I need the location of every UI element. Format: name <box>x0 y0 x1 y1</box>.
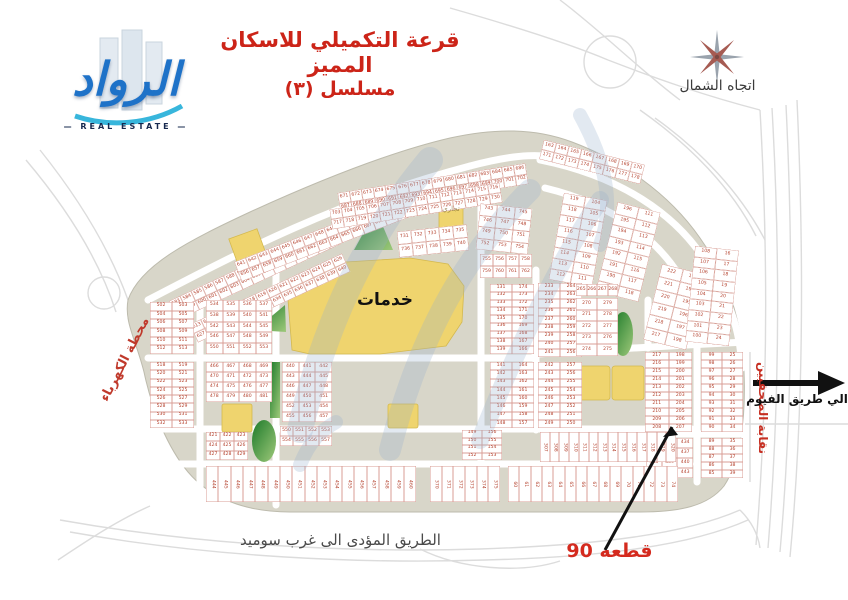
plot-cell: 97 <box>701 368 722 376</box>
plot-cell: 254 <box>560 387 582 395</box>
tr-block-1: 1191041181051171061161071151081141091131… <box>549 193 608 287</box>
plot-cell: 257 <box>560 362 582 370</box>
plot-cell: 256 <box>560 370 582 378</box>
strip-f: 1631641651661671681691701711721731741751… <box>539 140 645 185</box>
bottom-strip-3: 606162636465666768697071727374 <box>508 466 678 502</box>
plot-cell: 535 <box>223 300 240 311</box>
plot-cell: 203 <box>669 392 693 400</box>
plot-cell: 542 <box>206 322 223 333</box>
plot-cell: 238 <box>538 324 560 332</box>
plot-cell: 739 <box>440 239 455 253</box>
plot-cell: 372 <box>453 466 465 502</box>
plot-cell: 550 <box>206 343 223 354</box>
plot-cell: 168 <box>512 331 534 339</box>
plot-cell: 529 <box>172 403 194 411</box>
plot-cell: 552 <box>239 343 256 354</box>
plot-cell: 73 <box>655 466 666 502</box>
bottom-strip-2: 370371372373374375 <box>430 466 500 502</box>
plot-cell: 550 <box>280 426 293 436</box>
plot-cell: 520 <box>150 370 172 378</box>
plot-cell: 74 <box>667 466 678 502</box>
plot-cell: 466 <box>206 362 223 372</box>
plot-cell: 311 <box>579 432 589 462</box>
plot-cell: 240 <box>538 341 560 349</box>
plot-cell: 736 <box>398 243 413 257</box>
plot-cell: 452 <box>282 402 299 412</box>
plot-cell: 199 <box>669 360 693 368</box>
plot-cell: 265 <box>576 284 587 296</box>
plot-cell: 456 <box>354 466 366 502</box>
plot-cell: 449 <box>282 392 299 402</box>
plot-cell: 202 <box>669 384 693 392</box>
plot-cell: 754 <box>510 241 528 254</box>
services-area-label: خدمات <box>330 290 440 310</box>
plot-cell: 92 <box>701 408 722 416</box>
plot-cell: 279 <box>597 298 618 310</box>
plot-cell: 32 <box>722 408 743 416</box>
plot-cell: 442 <box>315 362 332 372</box>
arc-block-2: 1081610717106181051910420103211022210123… <box>685 246 739 346</box>
plot-cell: 244 <box>538 379 560 387</box>
plot-cell: 537 <box>256 300 273 311</box>
plot-cell: 555 <box>293 436 306 446</box>
plot-cell: 272 <box>576 321 597 333</box>
north-direction-label: اتجاه الشمال <box>655 78 780 94</box>
plot-cell: 69 <box>610 466 621 502</box>
plot-cell: 201 <box>669 376 693 384</box>
plot-cell: 150 <box>462 438 482 446</box>
plot-cell: 375 <box>488 466 500 502</box>
plot-cell: 740 <box>454 237 469 251</box>
plot-cell: 429 <box>234 451 248 460</box>
plot-cell: 702 <box>515 174 528 186</box>
plot-cell: 534 <box>206 300 223 311</box>
plot-cell: 440 <box>282 362 299 372</box>
left-grid-4: 4404414424434444454464474484494504514524… <box>282 362 332 422</box>
plot-cell: 762 <box>519 266 532 278</box>
plot-cell: 241 <box>538 349 560 357</box>
plot-cell: 66 <box>576 466 587 502</box>
plot-cell: 93 <box>701 400 722 408</box>
plot-cell: 456 <box>299 412 316 422</box>
plot-cell: 172 <box>512 300 534 308</box>
plot-cell: 422 <box>220 432 234 441</box>
plot-cell: 166 <box>512 346 534 354</box>
plot-cell: 524 <box>150 387 172 395</box>
plot-cell: 213 <box>645 384 669 392</box>
plot-cell: 239 <box>538 332 560 340</box>
plot-cell: 217 <box>645 352 669 360</box>
logo-arabic-text: الرواد <box>56 52 196 106</box>
plot-cell: 307 <box>540 432 550 462</box>
plot-cell: 145 <box>490 395 512 403</box>
plot-cell: 85 <box>701 470 722 478</box>
center-col-3: 149156150155151154152153 <box>462 430 502 460</box>
plot-cell: 450 <box>280 466 292 502</box>
plot-cell: 547 <box>223 332 240 343</box>
top-grid-3: 755756757758759760761762 <box>480 254 532 278</box>
plot-cell: 453 <box>317 466 329 502</box>
plot-cell: 70 <box>621 466 632 502</box>
plot-cell: 233 <box>538 283 560 291</box>
plot-cell: 91 <box>701 416 722 424</box>
plot-cell: 64 <box>553 466 564 502</box>
plot-cell: 276 <box>597 333 618 345</box>
plot-cell: 36 <box>722 446 743 454</box>
plot-cell: 309 <box>559 432 569 462</box>
plot-cell: 33 <box>722 416 743 424</box>
plot-cell: 434 <box>677 438 693 448</box>
plot-cell: 236 <box>538 308 560 316</box>
plot-cell: 539 <box>223 311 240 322</box>
plot-cell: 437 <box>677 448 693 458</box>
left-grid-2: 4664674684694704714724734744754764774784… <box>206 362 272 402</box>
plot-cell: 62 <box>531 466 542 502</box>
plot-cell: 447 <box>243 466 255 502</box>
plot-cell: 170 <box>512 315 534 323</box>
plot-cell: 167 <box>512 338 534 346</box>
plot-cell: 25 <box>722 352 743 360</box>
plot-cell: 214 <box>645 376 669 384</box>
plot-cell: 316 <box>627 432 637 462</box>
plot-cell: 98 <box>701 360 722 368</box>
plot-cell: 509 <box>172 328 194 337</box>
plot-cell: 730 <box>489 193 503 205</box>
plot-cell: 163 <box>512 370 534 378</box>
plot-cell: 29 <box>722 384 743 392</box>
plot-cell: 552 <box>306 426 319 436</box>
plot-cell: 452 <box>305 466 317 502</box>
plot-cell: 553 <box>319 426 332 436</box>
plot-cell: 444 <box>206 466 218 502</box>
plot-cell: 445 <box>315 372 332 382</box>
plot-cell: 533 <box>172 420 194 428</box>
plot-cell: 152 <box>462 453 482 461</box>
plot-cell: 147 <box>490 412 512 420</box>
mid-col-2: 2422572432562442552452542462532472522482… <box>538 362 582 428</box>
plot-cell: 317 <box>637 432 647 462</box>
plot-cell: 451 <box>292 466 304 502</box>
plot-cell: 135 <box>490 315 512 323</box>
plot-cell: 308 <box>550 432 560 462</box>
plot-cell: 153 <box>482 453 502 461</box>
plot-cell: 518 <box>150 362 172 370</box>
plot-cell: 320 <box>666 432 676 462</box>
plot-cell: 554 <box>280 436 293 446</box>
plot-cell: 237 <box>538 316 560 324</box>
plot-cell: 271 <box>576 310 597 322</box>
plot-cell: 245 <box>538 387 560 395</box>
plot-cell: 373 <box>465 466 477 502</box>
plot-cell: 445 <box>218 466 230 502</box>
plot-cell: 112 <box>549 269 573 284</box>
plot-cell: 72 <box>644 466 655 502</box>
plot-cell: 755 <box>480 254 493 266</box>
plot-cell: 446 <box>231 466 243 502</box>
plot-cell: 235 <box>538 299 560 307</box>
plot-cell: 551 <box>223 343 240 354</box>
vstrip-300s: 3073083093103113123133143153163173183193… <box>540 432 676 462</box>
center-col-2: 1411641421631431621441611451601461591471… <box>490 362 534 428</box>
title-line-1: قرعة التكميلي للاسكان المميز <box>190 28 490 78</box>
top-grid-1: 731732733734735736737738739740 <box>397 224 469 257</box>
plot-cell: 273 <box>576 333 597 345</box>
plot-cell: 476 <box>239 382 256 392</box>
plot-cell: 471 <box>223 372 240 382</box>
journalists-syndicate-label: نقابة الصحفيين <box>754 343 770 473</box>
plot-cell: 207 <box>669 424 693 432</box>
plot-cell: 319 <box>657 432 667 462</box>
plot-cell: 421 <box>206 432 220 441</box>
plot-cell: 457 <box>367 466 379 502</box>
plot-cell: 267 <box>597 284 608 296</box>
plot-cell: 513 <box>172 345 194 354</box>
plot-cell: 209 <box>645 416 669 424</box>
plot-cell: 26 <box>722 360 743 368</box>
plot-cell: 198 <box>669 352 693 360</box>
plot-cell: 94 <box>701 392 722 400</box>
title-line-2: مسلسل (٣) <box>190 78 490 101</box>
plot-cell: 458 <box>379 466 391 502</box>
right-col-1: 2171982161992152002142012132022122032112… <box>645 352 692 432</box>
plot-cell: 553 <box>256 343 273 354</box>
plot-cell: 480 <box>239 392 256 402</box>
plot-cell: 158 <box>512 412 534 420</box>
plot-cell: 149 <box>462 430 482 438</box>
plot-cell: 760 <box>493 266 506 278</box>
to-fayoum-road-label: الي طريق الفيوم <box>746 392 848 406</box>
plot-cell: 90 <box>701 424 722 432</box>
plot-cell: 148 <box>490 420 512 428</box>
plot-cell: 460 <box>404 466 416 502</box>
plot-cell: 519 <box>172 362 194 370</box>
plot-cell: 525 <box>172 387 194 395</box>
plot-cell: 538 <box>206 311 223 322</box>
plot-cell: 370 <box>430 466 442 502</box>
plot-cell: 503 <box>172 302 194 311</box>
plot-cell: 556 <box>306 436 319 446</box>
page-title: قرعة التكميلي للاسكان المميز مسلسل (٣) <box>190 28 490 101</box>
plot-cell: 96 <box>701 376 722 384</box>
plot-cell: 88 <box>701 446 722 454</box>
plot-cell: 479 <box>223 392 240 402</box>
plot-cell: 173 <box>512 292 534 300</box>
plot-cell: 247 <box>538 403 560 411</box>
plot-cell: 541 <box>256 311 273 322</box>
plot-cell: 455 <box>342 466 354 502</box>
mid-strip-55x: 550551552553554555556557 <box>280 426 332 446</box>
plot-cell: 448 <box>315 382 332 392</box>
plot-cell: 540 <box>239 311 256 322</box>
plot-cell: 453 <box>299 402 316 412</box>
plot-cell: 65 <box>565 466 576 502</box>
plot-cell: 34 <box>722 424 743 432</box>
plot-90-label: قطعه 90 <box>552 540 667 562</box>
plot-cell: 511 <box>172 337 194 346</box>
plot-cell: 215 <box>645 368 669 376</box>
plot-cell: 204 <box>669 400 693 408</box>
plot-cell: 527 <box>172 395 194 403</box>
plot-cell: 277 <box>597 321 618 333</box>
plot-cell: 137 <box>490 331 512 339</box>
plot-cell: 532 <box>150 420 172 428</box>
plot-cell: 428 <box>220 451 234 460</box>
plot-cell: 528 <box>150 403 172 411</box>
plot-cell: 266 <box>587 284 598 296</box>
plot-cell: 523 <box>172 379 194 387</box>
plot-cell: 425 <box>220 441 234 450</box>
plot-cell: 248 <box>538 412 560 420</box>
plot-cell: 761 <box>506 266 519 278</box>
plot-cell: 211 <box>645 400 669 408</box>
plot-cell: 200 <box>669 368 693 376</box>
road-to-west-sumid-label: الطريق المؤدى الى غرب سوميد <box>183 531 498 549</box>
plot-cell: 505 <box>172 311 194 320</box>
plot-cell: 543 <box>223 322 240 333</box>
plot-cell: 243 <box>538 370 560 378</box>
plot-cell: 472 <box>239 372 256 382</box>
plot-cell: 546 <box>206 332 223 343</box>
right-col-2: 9925982697279628952994309331923291339034 <box>701 352 743 432</box>
plot-cell: 310 <box>569 432 579 462</box>
plot-cell: 249 <box>538 420 560 428</box>
left-grid-3: 421422423424425426427428429 <box>206 432 248 460</box>
plot-cell: 468 <box>239 362 256 372</box>
plot-cell: 530 <box>150 412 172 420</box>
plot-cell: 318 <box>647 432 657 462</box>
plot-cell: 507 <box>172 319 194 328</box>
plot-cell: 474 <box>206 382 223 392</box>
plot-cell: 68 <box>599 466 610 502</box>
plot-cell: 522 <box>150 379 172 387</box>
plot-cell: 206 <box>669 416 693 424</box>
plot-cell: 134 <box>490 307 512 315</box>
plot-cell: 131 <box>490 284 512 292</box>
logo: الرواد — REAL ESTATE — <box>56 26 196 142</box>
plot-cell: 255 <box>560 379 582 387</box>
center-col-1: 1311741321731331721341711351701361691371… <box>490 284 534 354</box>
plot-cell: 274 <box>576 344 597 356</box>
plot-cell: 446 <box>282 382 299 392</box>
plot-cell: 154 <box>482 445 502 453</box>
plot-cell: 164 <box>512 362 534 370</box>
plot-cell: 99 <box>701 352 722 360</box>
plot-cell: 454 <box>315 402 332 412</box>
plot-cell: 242 <box>538 362 560 370</box>
plot-cell: 557 <box>319 436 332 446</box>
plot-cell: 89 <box>701 438 722 446</box>
plot-cell: 371 <box>442 466 454 502</box>
plot-cell: 141 <box>490 362 512 370</box>
plot-cell: 159 <box>512 403 534 411</box>
plot-cell: 275 <box>597 344 618 356</box>
right-col-3: 89358836873786388539 <box>701 438 743 478</box>
plot-cell: 60 <box>508 466 519 502</box>
plot-cell: 545 <box>256 322 273 333</box>
plot-cell: 143 <box>490 379 512 387</box>
plot-cell: 252 <box>560 403 582 411</box>
plot-cell: 423 <box>234 432 248 441</box>
plot-cell: 95 <box>701 384 722 392</box>
plot-cell: 521 <box>172 370 194 378</box>
plot-cell: 526 <box>150 395 172 403</box>
plot-cell: 37 <box>722 454 743 462</box>
plot-cell: 752 <box>476 238 494 251</box>
plot-cell: 424 <box>206 441 220 450</box>
plot-cell: 544 <box>239 322 256 333</box>
plot-cell: 313 <box>598 432 608 462</box>
plot-cell: 156 <box>482 430 502 438</box>
plot-cell: 151 <box>462 445 482 453</box>
arch-block: 270279271278272277273276274275 <box>576 298 618 356</box>
plot-cell: 758 <box>519 254 532 266</box>
bottom-strip-1: 4444454464474484494504514524534544554564… <box>206 466 416 502</box>
plot-cell: 169 <box>512 323 534 331</box>
plot-cell: 210 <box>645 408 669 416</box>
plot-cell: 155 <box>482 438 502 446</box>
plot-cell: 449 <box>268 466 280 502</box>
plot-cell: 27 <box>722 368 743 376</box>
plot-cell: 138 <box>490 338 512 346</box>
plot-cell: 444 <box>299 372 316 382</box>
left-grid-1: 5345355365375385395405415425435445455465… <box>206 300 272 354</box>
plot-cell: 441 <box>299 362 316 372</box>
plot-cell: 475 <box>223 382 240 392</box>
plot-cell: 132 <box>490 292 512 300</box>
arch-cap: 265266267268 <box>576 284 618 296</box>
plot-cell: 87 <box>701 454 722 462</box>
plot-cell: 738 <box>426 240 441 254</box>
plot-cell: 756 <box>493 254 506 266</box>
plot-cell: 86 <box>701 462 722 470</box>
plot-cell: 28 <box>722 376 743 384</box>
plot-cell: 753 <box>493 240 511 253</box>
plot-cell: 100 <box>685 331 708 344</box>
plot-cell: 314 <box>608 432 618 462</box>
plot-cell: 212 <box>645 392 669 400</box>
top-grid-2: 743744745746747748749750751752753754 <box>476 203 533 254</box>
plot-cell: 133 <box>490 300 512 308</box>
plot-cell: 234 <box>538 291 560 299</box>
plot-cell: 427 <box>206 451 220 460</box>
plot-cell: 549 <box>256 332 273 343</box>
plot-cell: 312 <box>589 432 599 462</box>
plot-cell: 208 <box>645 424 669 432</box>
plot-cell: 548 <box>239 332 256 343</box>
plot-cell: 171 <box>512 307 534 315</box>
plot-cell: 31 <box>722 400 743 408</box>
plot-cell: 477 <box>256 382 273 392</box>
plot-cell: 426 <box>234 441 248 450</box>
plot-cell: 473 <box>256 372 273 382</box>
plot-cell: 440 <box>677 458 693 468</box>
plot-cell: 510 <box>150 337 172 346</box>
plot-cell: 374 <box>477 466 489 502</box>
plot-cell: 470 <box>206 372 223 382</box>
plot-cell: 144 <box>490 387 512 395</box>
plot-cell: 469 <box>256 362 273 372</box>
plot-cell: 71 <box>633 466 644 502</box>
plot-cell: 455 <box>282 412 299 422</box>
plot-cell: 216 <box>645 360 669 368</box>
plot-cell: 737 <box>412 242 427 256</box>
plot-cell: 531 <box>172 412 194 420</box>
plot-cell: 39 <box>722 470 743 478</box>
plot-cell: 536 <box>239 300 256 311</box>
plot-cell: 161 <box>512 387 534 395</box>
logo-subtitle: — REAL ESTATE — <box>56 122 196 131</box>
plot-cell: 481 <box>256 392 273 402</box>
